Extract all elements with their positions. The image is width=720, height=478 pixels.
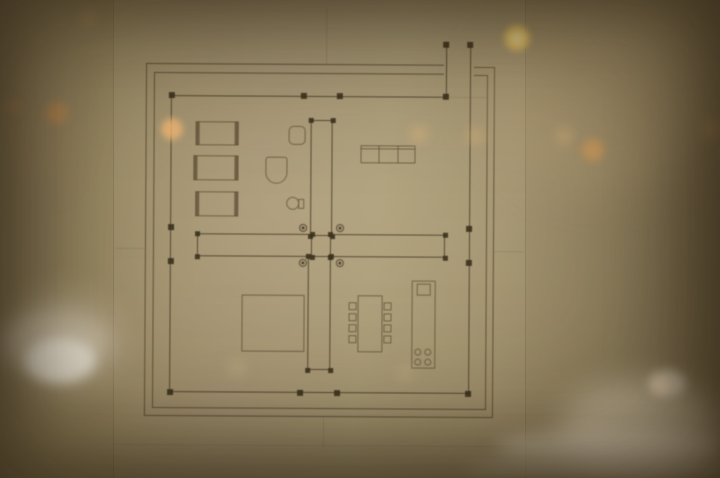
frame-outer-left	[144, 63, 148, 416]
bed-3-footboard	[234, 191, 238, 216]
bathtub	[265, 157, 287, 184]
wall-end-pier	[327, 255, 332, 260]
frame-outer-top-left	[146, 63, 444, 66]
stove-burner	[414, 349, 421, 356]
top-wall-guide-extension	[449, 97, 487, 98]
frame-inner-bottom	[152, 407, 486, 410]
sheet-bottom-edge	[112, 444, 523, 448]
frame-inner-top-left	[154, 72, 444, 75]
frame-outer-top-right	[474, 67, 495, 69]
dining-table	[357, 295, 382, 352]
pinwheel-wall-south	[307, 256, 331, 370]
pinwheel-wall-east	[330, 234, 445, 258]
column	[443, 42, 449, 48]
bed-1-footboard	[235, 121, 239, 145]
wall-end-pier	[309, 254, 314, 259]
kitchen-counter-divider	[378, 145, 379, 163]
top-exterior-wall	[172, 95, 447, 98]
frame-inner-left	[152, 72, 155, 408]
center-axis-guide-bottom	[323, 417, 324, 448]
column	[169, 92, 175, 98]
stove-burner	[424, 359, 431, 366]
column	[168, 258, 174, 264]
column	[168, 224, 174, 230]
frame-inner-right	[485, 75, 488, 410]
wall-end-pier	[194, 254, 199, 259]
column	[466, 260, 472, 266]
floor-plan-drawing	[0, 0, 720, 478]
bed-1	[196, 121, 239, 145]
chair	[348, 324, 356, 332]
bottom-exterior-wall	[170, 391, 468, 394]
wall-end-pier	[305, 367, 310, 372]
court-extension-wall	[446, 45, 448, 97]
bed-2	[193, 155, 238, 180]
bed-2-footboard	[234, 155, 238, 180]
pinwheel-wall-north	[310, 120, 333, 236]
island-sink	[417, 284, 431, 296]
round-column	[299, 259, 307, 267]
center-axis-guide-right	[494, 251, 524, 252]
round-column	[336, 259, 344, 267]
pinwheel-wall-west	[197, 233, 312, 257]
photo-of-framed-floor-plan	[0, 0, 720, 478]
column	[334, 390, 340, 396]
washbasin	[289, 126, 306, 145]
chair	[348, 335, 356, 343]
chair	[349, 302, 357, 310]
column	[337, 93, 343, 99]
wall-end-pier	[330, 118, 335, 123]
patio-square	[241, 295, 304, 352]
bed-2-headboard	[193, 155, 197, 180]
bed-3	[195, 191, 238, 216]
wall-end-pier	[310, 231, 315, 236]
column	[467, 42, 473, 48]
round-column	[336, 224, 344, 232]
frame-outer-right	[492, 67, 496, 418]
frame-inner-top-right	[474, 75, 487, 76]
center-axis-guide-top	[326, 8, 327, 64]
chair	[384, 302, 392, 310]
column	[443, 94, 449, 100]
round-column	[299, 224, 307, 232]
stove-burner	[424, 349, 431, 356]
column	[297, 390, 303, 396]
kitchen-counter-divider	[397, 145, 398, 163]
frame-outer-bottom	[144, 415, 493, 419]
stove-burner	[414, 359, 421, 366]
bed-3-headboard	[195, 191, 199, 216]
wall-end-pier	[328, 232, 333, 237]
center-axis-guide-left	[115, 248, 146, 249]
bed-1-headboard	[196, 121, 200, 145]
chair	[383, 335, 391, 343]
chair	[349, 313, 357, 321]
left-exterior-wall	[169, 95, 172, 392]
wall-end-pier	[443, 232, 448, 237]
toilet-tank	[298, 199, 304, 209]
wall-end-pier	[195, 231, 200, 236]
column	[465, 391, 471, 397]
wall-end-pier	[442, 255, 447, 260]
wall-end-pier	[308, 117, 313, 122]
column	[301, 93, 307, 99]
chair	[384, 313, 392, 321]
wall-end-pier	[328, 368, 333, 373]
column	[466, 226, 472, 232]
chair	[383, 324, 391, 332]
column	[167, 389, 173, 395]
